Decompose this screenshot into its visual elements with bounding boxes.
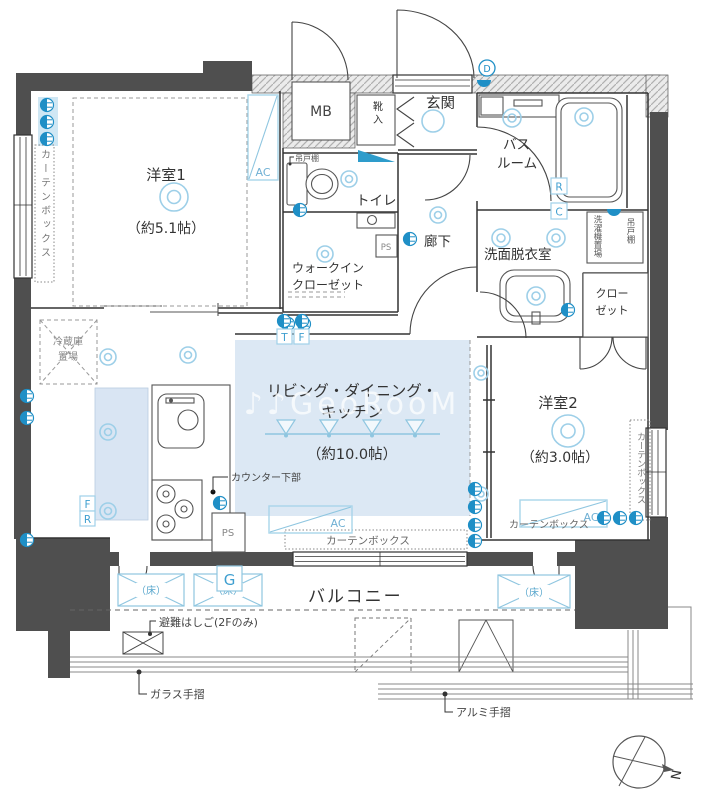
escape-ladder-box bbox=[123, 632, 163, 654]
fridge-label-1: 冷蔵庫 bbox=[53, 335, 83, 348]
window-west2-right bbox=[646, 428, 666, 517]
svg-text:（床）: （床） bbox=[519, 586, 549, 599]
planter-dashed-box bbox=[355, 618, 411, 672]
curtain-box-right-label: カーテンボックス bbox=[635, 432, 646, 504]
gas-meter-label: G bbox=[224, 571, 236, 589]
ac-west2-label: AC bbox=[583, 511, 598, 524]
alumi-rail-label: アルミ手摺 bbox=[456, 705, 511, 719]
kitchen-counter bbox=[95, 388, 148, 520]
compass: N bbox=[613, 736, 683, 788]
label-d-entrance: D bbox=[483, 64, 490, 75]
shoe-box-label: 靴入 bbox=[371, 100, 383, 127]
sliding-door-west1 bbox=[104, 303, 218, 316]
watermark: ♪♪GeoRooM bbox=[244, 387, 460, 422]
window-balcony bbox=[293, 552, 467, 566]
room-west1-size: （約5.1帖） bbox=[127, 221, 205, 237]
floor-hatch-3: （床） bbox=[498, 575, 570, 608]
label-r-kitchen: R bbox=[84, 514, 91, 526]
room-west2-name: 洋室2 bbox=[538, 394, 578, 412]
hanging-cabinet-toilet-label: 吊戸棚 bbox=[295, 153, 319, 163]
glass-rail-label: ガラス手摺 bbox=[150, 687, 205, 701]
ac-ldk-label: AC bbox=[330, 517, 345, 530]
window-west1-left bbox=[14, 135, 32, 278]
label-t: T bbox=[280, 332, 288, 344]
toilet-sliding-door-icon bbox=[358, 150, 395, 162]
toilet-hand-basin bbox=[357, 213, 395, 228]
wic-label-2: クローゼット bbox=[292, 278, 364, 292]
escape-ladder-label: 避難はしご(2Fのみ) bbox=[159, 615, 258, 629]
room-west1-name: 洋室1 bbox=[146, 166, 186, 184]
curtain-box-west2-label: カーテンボックス bbox=[509, 519, 589, 531]
room-west2-size: （約3.0帖） bbox=[521, 450, 599, 466]
curtain-box-ldk-label: カーテンボックス bbox=[326, 535, 410, 547]
svg-text:（床）: （床） bbox=[136, 584, 166, 597]
ps-toilet-label: PS bbox=[381, 243, 392, 253]
label-r-bath: R bbox=[555, 182, 562, 194]
ps-kitchen-label: PS bbox=[222, 528, 234, 539]
washer-space-label: 洗濯機置場 bbox=[592, 214, 602, 258]
glass-railing bbox=[70, 657, 628, 672]
ac-west1-label: AC bbox=[255, 166, 270, 179]
bath-label-1: バス bbox=[503, 137, 530, 153]
outdoor-unit-box bbox=[459, 620, 513, 672]
label-f-kitchen: F bbox=[84, 499, 90, 511]
floor-hatch-1: （床） bbox=[118, 574, 184, 606]
closet-label-2: ゼット bbox=[596, 304, 629, 317]
hanging-cabinet-wash-label: 吊戸棚 bbox=[625, 218, 635, 244]
washroom-basin bbox=[500, 270, 570, 324]
closet-label-1: クロー bbox=[596, 287, 629, 300]
counter-lower-label: カウンター下部 bbox=[231, 471, 301, 484]
floor-plan-drawing: T F F R R C D （床） （床） （床） bbox=[0, 0, 708, 800]
balcony-label: バルコニー bbox=[308, 587, 403, 607]
bath-label-2: ルーム bbox=[497, 156, 537, 172]
washroom-label: 洗面脱衣室 bbox=[484, 246, 552, 263]
compass-north: N bbox=[666, 768, 682, 780]
wic-label-1: ウォークイン bbox=[292, 261, 364, 275]
label-f-ldk: F bbox=[298, 332, 304, 344]
hallway-label: 廊下 bbox=[424, 233, 451, 250]
toilet-label: トイレ bbox=[356, 193, 397, 209]
ldk-floor bbox=[235, 340, 470, 516]
ldk-size: （約10.0帖） bbox=[307, 446, 397, 463]
entrance-opening bbox=[393, 75, 472, 93]
toilet-fixture bbox=[287, 163, 338, 205]
fridge-label-2: 置場 bbox=[58, 350, 78, 363]
curtain-box-left-label: カーテンボックス bbox=[39, 149, 51, 261]
meter-box-label: MB bbox=[310, 104, 332, 120]
floor-plan: T F F R R C D （床） （床） （床） bbox=[0, 0, 708, 800]
label-c-bath: C bbox=[555, 207, 562, 219]
entrance-label: 玄関 bbox=[426, 95, 455, 112]
